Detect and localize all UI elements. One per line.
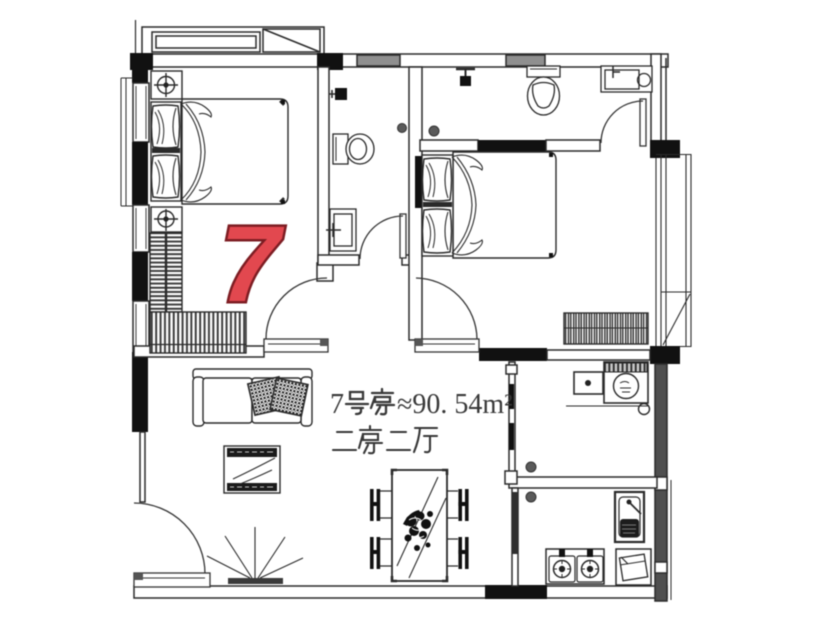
svg-text:≈90. 54m²: ≈90. 54m² [397,389,513,420]
svg-text:7: 7 [330,389,344,420]
svg-text:7: 7 [220,203,285,324]
